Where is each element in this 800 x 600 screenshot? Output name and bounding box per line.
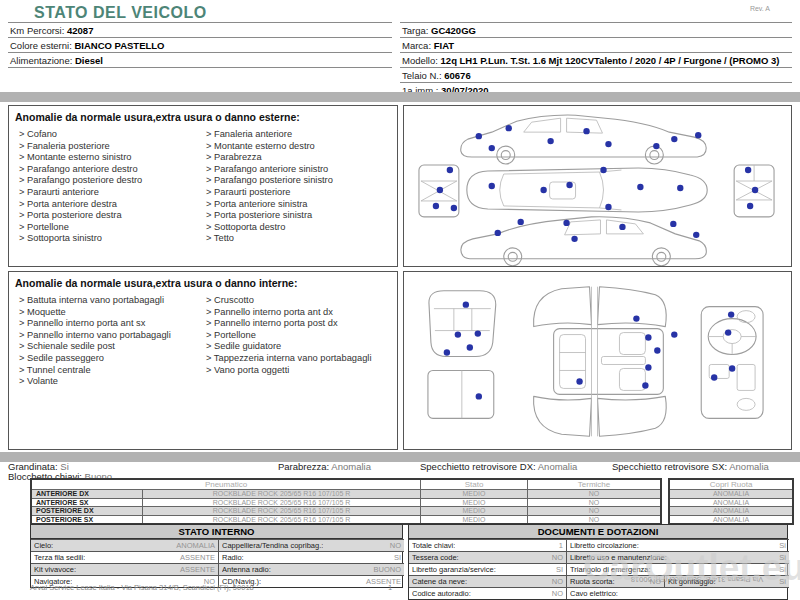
damage-marker-dot bbox=[725, 329, 731, 335]
damage-marker-dot bbox=[495, 230, 501, 236]
condition-summary-line: Grandinata: Si Parabrezza: Anomalia Spec… bbox=[8, 461, 792, 472]
damage-marker-dot bbox=[670, 221, 676, 227]
damage-marker-dot bbox=[729, 365, 735, 371]
anomaly-item: > Parafango posteriore destro bbox=[19, 175, 200, 187]
damage-marker-dot bbox=[476, 133, 482, 139]
interior-damage-diagram bbox=[403, 271, 792, 450]
anomaly-item: > Parafango anteriore destro bbox=[19, 164, 200, 176]
revision-label: Rev. A bbox=[750, 5, 770, 12]
anomaly-item: > Sedile guidatore bbox=[206, 341, 387, 353]
tyre-termiche: NO bbox=[527, 506, 660, 515]
tyre-termiche: NO bbox=[527, 515, 660, 524]
anomaly-item: > Porta anteriore destra bbox=[19, 199, 200, 211]
info-row: Telaio N.: 60676 bbox=[400, 68, 792, 83]
damage-marker-dot bbox=[576, 378, 582, 384]
damage-marker-dot bbox=[563, 220, 569, 226]
table-row: Kit vivavoce:ASSENTE Antenna radio:BUONO bbox=[31, 563, 402, 575]
table-row: Libretto garanzia/service:SI Triangolo d… bbox=[409, 563, 787, 575]
anomaly-item: > Paraurti anteriore bbox=[19, 187, 200, 199]
damage-marker-dot bbox=[677, 185, 683, 191]
damage-marker-dot bbox=[619, 224, 625, 230]
info-label: Targa: bbox=[402, 25, 428, 36]
exterior-anomalies-header: Anomalie da normale usura,extra usura o … bbox=[9, 106, 397, 126]
copri-ruota-value: ANOMALIA bbox=[670, 489, 792, 498]
damage-marker-dot bbox=[671, 331, 677, 337]
damage-marker-dot bbox=[547, 138, 553, 144]
damage-marker-dot bbox=[467, 344, 473, 350]
separator-band bbox=[0, 92, 800, 102]
stato-interno-title: STATO INTERNO bbox=[31, 525, 402, 539]
tyre-position: ANTERIORE SX bbox=[32, 498, 142, 507]
tyre-header-stato: Stato bbox=[420, 480, 527, 489]
anomaly-item: > Pannello interno porta ant sx bbox=[19, 318, 200, 330]
damage-marker-dot bbox=[437, 187, 443, 193]
anomaly-item: > Montante esterno sinistro bbox=[19, 152, 200, 164]
anomaly-item: > Paraurti posteriore bbox=[206, 187, 387, 199]
anomaly-item: > Pannello interno porta post dx bbox=[206, 318, 387, 330]
anomaly-item: > Porta posteriore destra bbox=[19, 210, 200, 222]
info-value: 42087 bbox=[67, 25, 93, 36]
anomaly-item: > Parafango posteriore sinistro bbox=[206, 175, 387, 187]
exterior-damage-diagram bbox=[403, 105, 792, 267]
damage-marker-dot bbox=[476, 393, 482, 399]
documenti-dotazioni-table: DOCUMENTI E DOTAZIONI Totale chiavi:1 Li… bbox=[408, 524, 788, 600]
interior-diagram-svg bbox=[404, 272, 791, 449]
tyre-termiche: NO bbox=[527, 489, 660, 498]
damage-marker-dot bbox=[605, 204, 611, 210]
anomaly-item: > Sottoporta sinistro bbox=[19, 233, 200, 245]
table-row: Cielo:ANOMALIA Cappelliera/Tendina copri… bbox=[31, 539, 402, 551]
interior-anomalies-list: > Battuta interna vano portabagagli > Mo… bbox=[9, 292, 397, 388]
anomaly-item: > Cofano bbox=[19, 129, 200, 141]
info-value: Diesel bbox=[75, 55, 103, 66]
tyre-position: POSTERIORE SX bbox=[32, 515, 142, 524]
vehicle-report-page: STATO DEL VEICOLO Rev. A Km Percorsi: 42… bbox=[0, 0, 800, 600]
documenti-title: DOCUMENTI E DOTAZIONI bbox=[409, 525, 787, 539]
info-row: Alimentazione: Diesel bbox=[8, 53, 392, 68]
copri-ruota-value: ANOMALIA bbox=[670, 498, 792, 507]
damage-marker-dot bbox=[745, 167, 751, 173]
damage-marker-dot bbox=[600, 167, 606, 173]
info-row: Marca: FIAT bbox=[400, 38, 792, 53]
anomaly-item: > Sottoporta destro bbox=[206, 222, 387, 234]
damage-marker-dot bbox=[728, 311, 734, 317]
copri-ruota-header: Copri Ruota bbox=[670, 480, 792, 489]
table-row: Codice autoradio:NO Cavo elettrico: bbox=[409, 587, 787, 599]
mirrored-footer-text: Via Pisana 314/B, Scandicci (FI), 50018 bbox=[602, 575, 792, 584]
copri-ruota-value: ANOMALIA bbox=[670, 506, 792, 515]
anomaly-item: > Pannello interno vano portabagagli bbox=[19, 330, 200, 342]
tyre-position: ANTERIORE DX bbox=[32, 489, 142, 498]
info-row: Colore esterni: BIANCO PASTELLO bbox=[8, 38, 392, 53]
tyre-header-pneumatico: Pneumatico bbox=[32, 480, 420, 489]
anomaly-item: > Montante esterno destro bbox=[206, 141, 387, 153]
tyre-spec: ROCKBLADE ROCK 205/65 R16 107/105 R bbox=[142, 515, 420, 524]
damage-marker-dot bbox=[653, 143, 659, 149]
damage-marker-dot bbox=[645, 364, 651, 370]
damage-marker-dot bbox=[455, 331, 461, 337]
info-label: Marca: bbox=[402, 40, 431, 51]
damage-marker-dot bbox=[506, 125, 512, 131]
anomaly-item: > Porta anteriore sinistra bbox=[206, 199, 387, 211]
anomaly-item: > Fanaleria posteriore bbox=[19, 141, 200, 153]
anomaly-item: > Fanaleria anteriore bbox=[206, 129, 387, 141]
info-row: Km Percorsi: 42087 bbox=[8, 23, 392, 38]
damage-marker-dot bbox=[489, 183, 495, 189]
damage-marker-dot bbox=[711, 374, 717, 380]
damage-marker-dot bbox=[633, 315, 639, 321]
tyre-termiche: NO bbox=[527, 498, 660, 507]
tyre-position: POSTERIORE DX bbox=[32, 506, 142, 515]
anomaly-item: > Parafango anteriore sinistro bbox=[206, 164, 387, 176]
damage-marker-dot bbox=[671, 136, 677, 142]
damage-marker-dot bbox=[566, 182, 572, 188]
damage-marker-dot bbox=[645, 334, 651, 340]
info-label: Km Percorsi: bbox=[10, 25, 64, 36]
info-value: FIAT bbox=[434, 40, 454, 51]
anomaly-item: > Tunnel centrale bbox=[19, 365, 200, 377]
tyre-stato: MEDIO bbox=[420, 498, 527, 507]
vehicle-info-left: Km Percorsi: 42087 Colore esterni: BIANC… bbox=[8, 22, 392, 68]
damage-marker-dot bbox=[637, 184, 643, 190]
interior-anomalies-header: Anomalie da normale usura,extra usura o … bbox=[9, 272, 397, 292]
damage-marker-dot bbox=[752, 187, 758, 193]
damage-marker-dot bbox=[695, 132, 701, 138]
info-label: Colore esterni: bbox=[10, 40, 72, 51]
table-row: Terza fila sedili:ASSENTE Radio:SI bbox=[31, 551, 402, 563]
info-label: Telaio N.: bbox=[402, 70, 442, 81]
damage-marker-dot bbox=[444, 349, 450, 355]
table-row: Tessera code:NO Libretto uso e manutenzi… bbox=[409, 551, 787, 563]
damage-marker-dot bbox=[747, 203, 753, 209]
vehicle-info-right: Targa: GC420GG Marca: FIAT Modello: 12q … bbox=[400, 22, 792, 98]
damage-marker-dot bbox=[540, 187, 546, 193]
damage-marker-dot bbox=[447, 167, 453, 173]
anomaly-item: > Moquette bbox=[19, 307, 200, 319]
damage-marker-dot bbox=[693, 232, 699, 238]
anomaly-item: > Cruscotto bbox=[206, 295, 387, 307]
anomaly-item: > Battuta interna vano portabagagli bbox=[19, 295, 200, 307]
damage-marker-dot bbox=[489, 145, 495, 151]
info-value: BIANCO PASTELLO bbox=[74, 40, 164, 51]
anomaly-item: > Schienale sedile post bbox=[19, 341, 200, 353]
copri-ruota-value: ANOMALIA bbox=[670, 515, 792, 524]
page-title: STATO DEL VEICOLO bbox=[34, 4, 207, 22]
damage-marker-dot bbox=[433, 203, 439, 209]
interior-anomalies-box: Anomalie da normale usura,extra usura o … bbox=[8, 271, 398, 450]
condition-specchietto-dx: Specchietto retrovisore DX: Anomalia bbox=[420, 461, 577, 472]
info-value: GC420GG bbox=[431, 25, 476, 36]
anomaly-item: > Porta posteriore sinistra bbox=[206, 210, 387, 222]
tyre-spec: ROCKBLADE ROCK 205/65 R16 107/105 R bbox=[142, 506, 420, 515]
anomaly-item: > Vano porta oggetti bbox=[206, 365, 387, 377]
info-label: Alimentazione: bbox=[10, 55, 72, 66]
tyre-table: Pneumatico Stato Termiche ANTERIORE DX R… bbox=[30, 478, 662, 525]
anomaly-item: > Tappezzeria interna vano portabagagli bbox=[206, 353, 387, 365]
condition-parabrezza: Parabrezza: Anomalia bbox=[278, 461, 371, 472]
damage-marker-dot bbox=[518, 219, 524, 225]
anomaly-item: > Sedile passeggero bbox=[19, 353, 200, 365]
anomaly-item: > Portellone bbox=[19, 222, 200, 234]
damage-marker-dot bbox=[571, 236, 577, 242]
tyre-header-termiche: Termiche bbox=[527, 480, 660, 489]
tyre-stato: MEDIO bbox=[420, 489, 527, 498]
tyre-spec: ROCKBLADE ROCK 205/65 R16 107/105 R bbox=[142, 489, 420, 498]
tyre-stato: MEDIO bbox=[420, 515, 527, 524]
info-row: Targa: GC420GG bbox=[400, 23, 792, 38]
condition-specchietto-sx: Specchietto retrovisore SX: Anomalia bbox=[612, 461, 769, 472]
info-value: 60676 bbox=[444, 70, 470, 81]
exterior-anomalies-list: > Cofano > Fanaleria posteriore > Montan… bbox=[9, 126, 397, 245]
anomaly-item: > Parabrezza bbox=[206, 152, 387, 164]
anomaly-item: > Portellone bbox=[206, 330, 387, 342]
damage-marker-dot bbox=[475, 330, 481, 336]
damage-marker-dot bbox=[463, 301, 469, 307]
damage-marker-dot bbox=[605, 141, 611, 147]
info-row: Modello: 12q LH1 P.Lun. T.St. 1.6 Mjt 12… bbox=[400, 53, 792, 68]
info-value: 12q LH1 P.Lun. T.St. 1.6 Mjt 120CVTalent… bbox=[441, 55, 780, 66]
stato-interno-table: STATO INTERNO Cielo:ANOMALIA Cappelliera… bbox=[30, 524, 403, 588]
tyre-stato: MEDIO bbox=[420, 506, 527, 515]
tyre-spec: ROCKBLADE ROCK 205/65 R16 107/105 R bbox=[142, 498, 420, 507]
damage-marker-dot bbox=[642, 382, 648, 388]
damage-marker-dot bbox=[583, 128, 589, 134]
footer-company: Arval Service Lease Italia - Via Pisana … bbox=[30, 583, 254, 592]
damage-marker-dot bbox=[654, 347, 660, 353]
footer-page-number: 1 bbox=[388, 583, 392, 592]
anomaly-item: > Pannello interno porta ant dx bbox=[206, 307, 387, 319]
exterior-anomalies-box: Anomalie da normale usura,extra usura o … bbox=[8, 105, 398, 267]
anomaly-item: > Volante bbox=[19, 376, 200, 388]
info-label: Modello: bbox=[402, 55, 438, 66]
anomaly-item: > Tetto bbox=[206, 233, 387, 245]
damage-marker-dot bbox=[451, 205, 457, 211]
exterior-diagram-svg bbox=[404, 106, 791, 266]
table-row: Totale chiavi:1 Libretto circolazione:Si bbox=[409, 539, 787, 551]
copri-ruota-table: Copri Ruota ANOMALIA ANOMALIA ANOMALIA A… bbox=[668, 478, 794, 525]
